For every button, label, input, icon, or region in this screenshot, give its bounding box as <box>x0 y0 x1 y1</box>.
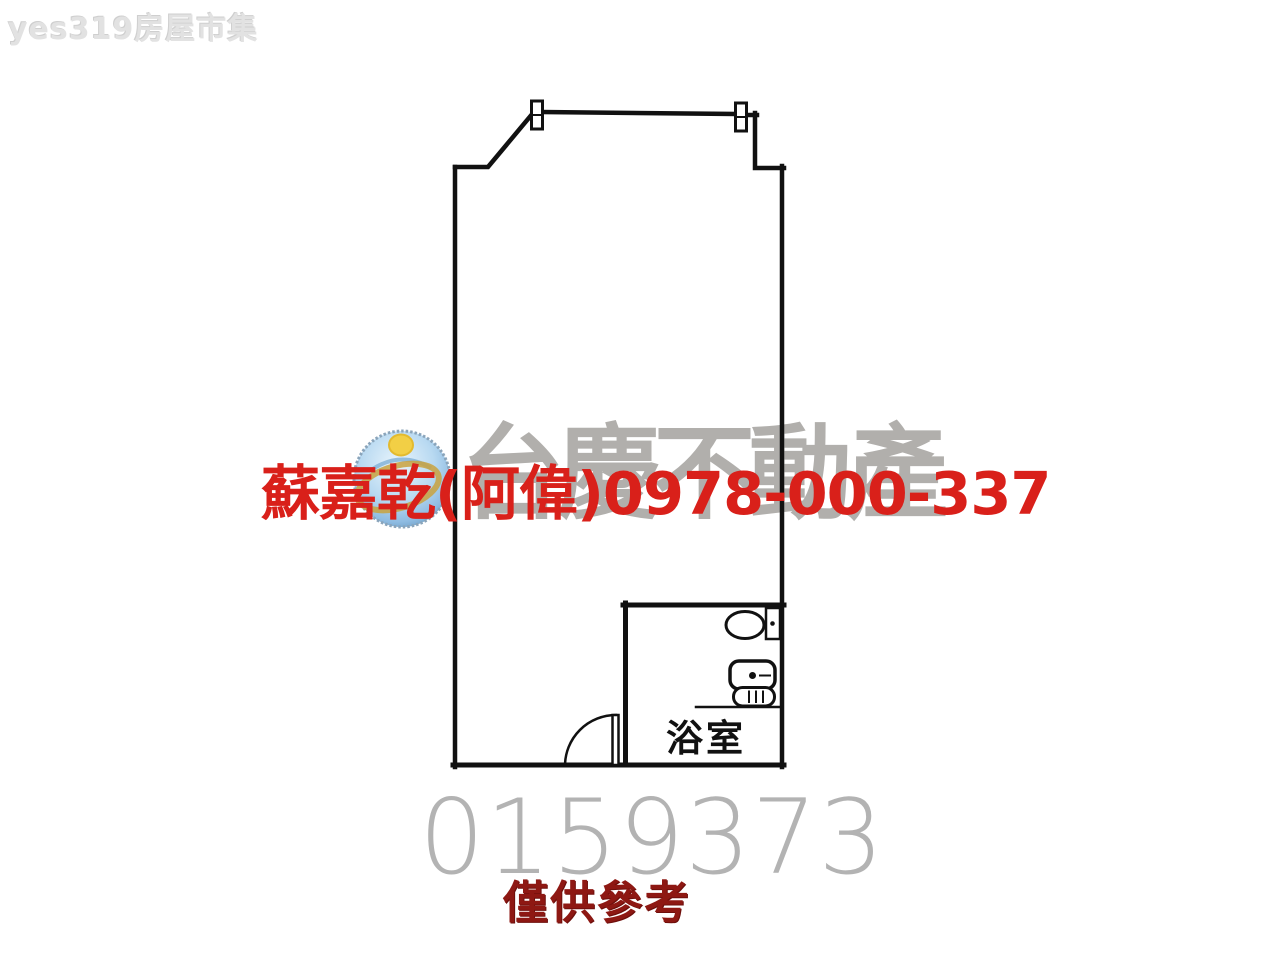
agent-contact-watermark: 蘇嘉乾(阿偉)0978-000-337 <box>261 446 1050 531</box>
bathroom-label: 浴室 <box>666 717 746 760</box>
toilet-icon <box>726 608 780 639</box>
disclaimer-text: 僅供參考 <box>503 866 691 931</box>
floorplan-image: yes319房屋市集 台慶不動產 <box>0 0 1280 960</box>
washbasin-icon <box>730 661 775 689</box>
door-swing-icon <box>565 715 619 766</box>
window-icon <box>736 103 747 131</box>
window-icon <box>532 101 543 129</box>
bath-grille-icon <box>734 688 775 707</box>
